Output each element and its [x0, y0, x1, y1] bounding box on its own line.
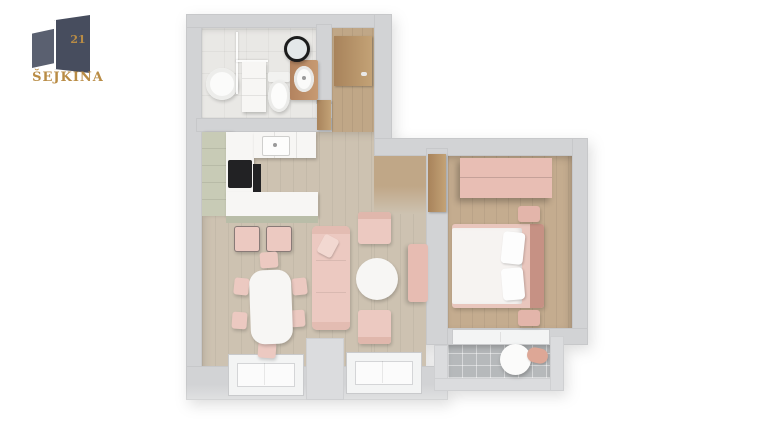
sofa: [312, 226, 350, 330]
cooktop: [228, 160, 252, 188]
toilet-bowl: [268, 80, 290, 112]
armchair: [358, 310, 391, 344]
living-window-right: [346, 352, 422, 394]
hall-right-wall: [374, 14, 392, 148]
nightstand: [518, 206, 540, 222]
kitchen-sink: [262, 136, 290, 156]
washing-machine: [206, 68, 238, 100]
faucet-icon: [302, 76, 306, 80]
bedroom-door: [428, 154, 446, 212]
bed-frame: [452, 224, 544, 308]
dining-table: [249, 269, 294, 344]
vanity-sink: [290, 60, 318, 100]
living-window-left: [228, 354, 304, 396]
balcony-table: [500, 344, 531, 375]
dining-chair: [231, 311, 247, 329]
outer-wall-left: [186, 14, 202, 400]
round-mirror: [284, 36, 310, 62]
counter-side-panel: [226, 216, 318, 223]
entry-door: [334, 36, 372, 86]
bedroom-top-wall: [374, 138, 588, 156]
tv-sideboard: [408, 244, 428, 302]
door-handle-icon: [361, 72, 367, 76]
counter-bottom: [226, 192, 318, 216]
bedroom-window: [452, 329, 550, 345]
bed-pillow: [501, 267, 526, 301]
bar-stool: [234, 226, 260, 252]
dining-chair: [233, 277, 250, 295]
bar-stool: [266, 226, 292, 252]
window-pier-wall: [306, 338, 344, 400]
nightstand: [518, 310, 540, 326]
armchair: [358, 212, 391, 244]
sofa-pillow: [316, 233, 340, 258]
headboard: [530, 224, 544, 308]
faucet-icon: [273, 143, 277, 147]
balcony-wall-right: [550, 336, 564, 391]
outer-wall-top: [186, 14, 392, 28]
sofa-armrest: [312, 322, 350, 330]
bath-kitchen-wall: [196, 118, 332, 132]
bathroom-cabinet: [242, 62, 266, 112]
sofa-armrest: [312, 226, 350, 234]
shower-glass-partition: [236, 32, 238, 94]
bathroom-door: [317, 100, 331, 130]
bedroom-right-wall: [572, 138, 588, 345]
dining-chair: [259, 251, 278, 268]
floor-plan: [0, 0, 768, 432]
bath-hall-wall: [316, 24, 332, 104]
bed-pillow: [500, 231, 525, 265]
balcony-wall-bottom: [434, 378, 564, 391]
dining-chair: [291, 277, 308, 295]
coffee-table: [356, 258, 398, 300]
oven-front: [253, 164, 261, 192]
wardrobe: [460, 158, 552, 198]
render-canvas: 21 ŠEJKINA: [0, 0, 768, 432]
